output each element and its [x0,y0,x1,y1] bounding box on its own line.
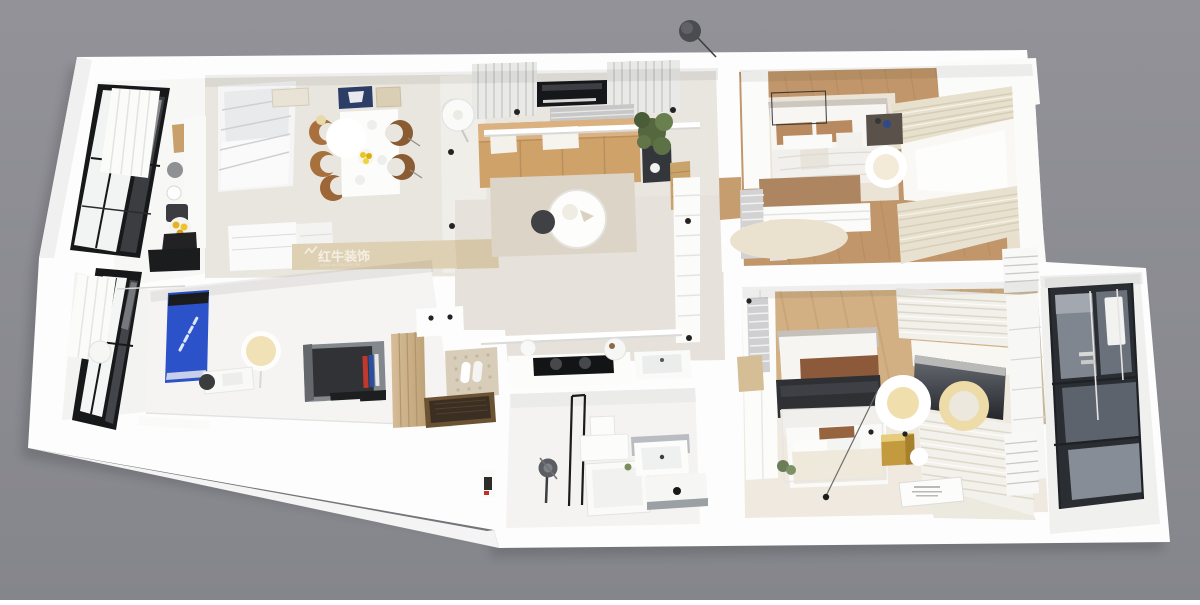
svg-text:HONG NIU ZHUANG SHI: HONG NIU ZHUANG SHI [320,263,360,268]
